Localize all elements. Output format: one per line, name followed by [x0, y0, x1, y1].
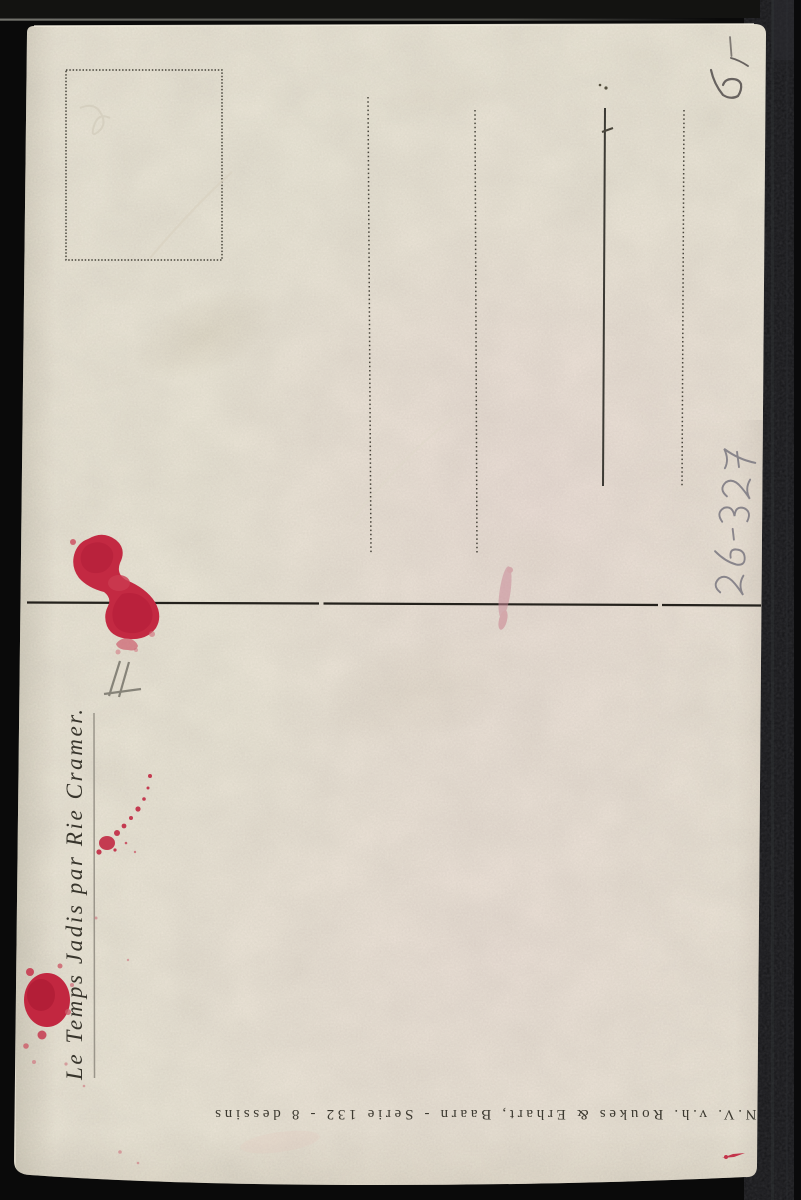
- svg-text:N.V. v.h. Roukes & Erhart, Baa: N.V. v.h. Roukes & Erhart, Baarn - Serie…: [211, 1106, 756, 1122]
- svg-text:Le Temps Jadis par Rie Cramer.: Le Temps Jadis par Rie Cramer.: [62, 706, 87, 1081]
